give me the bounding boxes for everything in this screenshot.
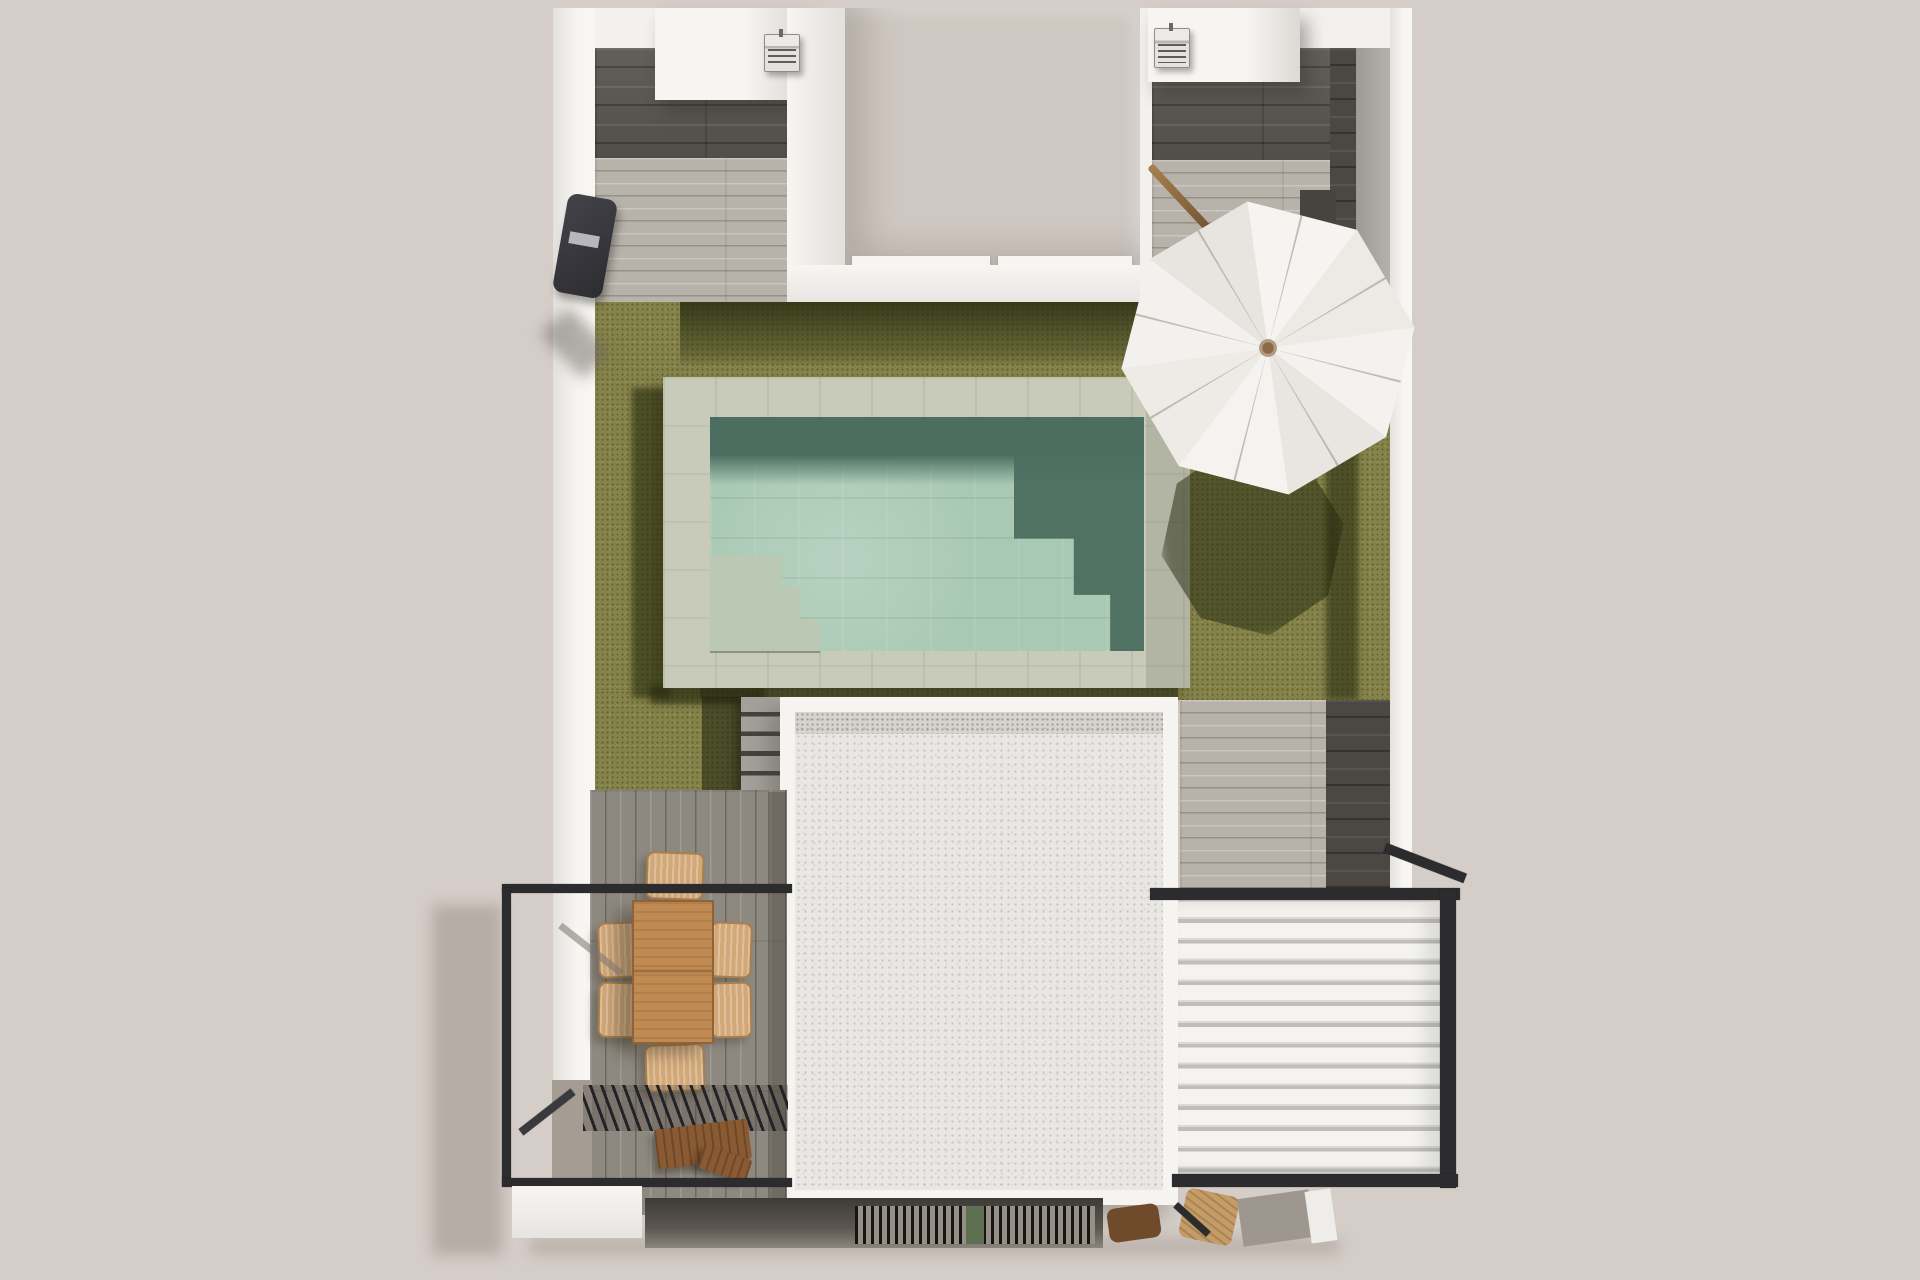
left-boundary-wall xyxy=(553,8,595,1080)
lower-step-wedge xyxy=(1237,1189,1315,1247)
scene-canvas xyxy=(0,0,1920,1280)
railing-left-bar xyxy=(502,888,511,1186)
courtyard-door-threshold xyxy=(998,256,1132,265)
dining-pergola-slats xyxy=(583,1085,788,1131)
dining-table xyxy=(632,900,714,1044)
pool-step-2 xyxy=(710,587,800,619)
lounger-dark-wood xyxy=(1106,1203,1162,1244)
ac-pipe xyxy=(779,29,783,37)
ac-grill xyxy=(768,49,796,67)
pergola-frame-bottom xyxy=(1172,1174,1458,1187)
roof-shadow-on-terrace xyxy=(768,792,786,1204)
ac-grill xyxy=(1158,44,1186,63)
railing-ground-shadow xyxy=(432,905,502,1255)
garden-steps-shadow xyxy=(702,697,742,793)
railing-top-bar xyxy=(502,884,792,893)
right-boundary-wall xyxy=(1390,8,1412,888)
ac-unit-right-wing xyxy=(1154,28,1190,68)
right-lower-dark-band xyxy=(1326,700,1390,890)
pergola-frame-right xyxy=(1440,890,1456,1188)
umbrella-hub xyxy=(1259,339,1277,357)
pergola-frame-top xyxy=(1150,888,1460,900)
dining-chair-right-1 xyxy=(709,921,753,978)
pool-step-1 xyxy=(710,556,782,587)
roof-texture-band xyxy=(795,712,1163,734)
courtyard-door-threshold xyxy=(852,256,990,265)
shower-detail-stripe xyxy=(568,231,600,248)
main-house-roof xyxy=(780,697,1178,1205)
lower-level-wall xyxy=(512,1186,642,1238)
left-wing-plank-paving xyxy=(595,158,787,310)
ac-unit-left-wing xyxy=(764,34,800,72)
right-lower-plank-paving xyxy=(1180,700,1326,890)
dining-chair-right-2 xyxy=(710,982,753,1039)
dining-chair-top xyxy=(645,851,705,901)
courtyard-south-wall xyxy=(787,265,1140,305)
courtyard-floor xyxy=(845,8,1140,268)
grill-green-element xyxy=(966,1206,984,1244)
ac-pipe xyxy=(1169,23,1173,31)
pool-step-3 xyxy=(710,619,820,651)
louvred-pergola-slats xyxy=(1178,902,1440,1172)
